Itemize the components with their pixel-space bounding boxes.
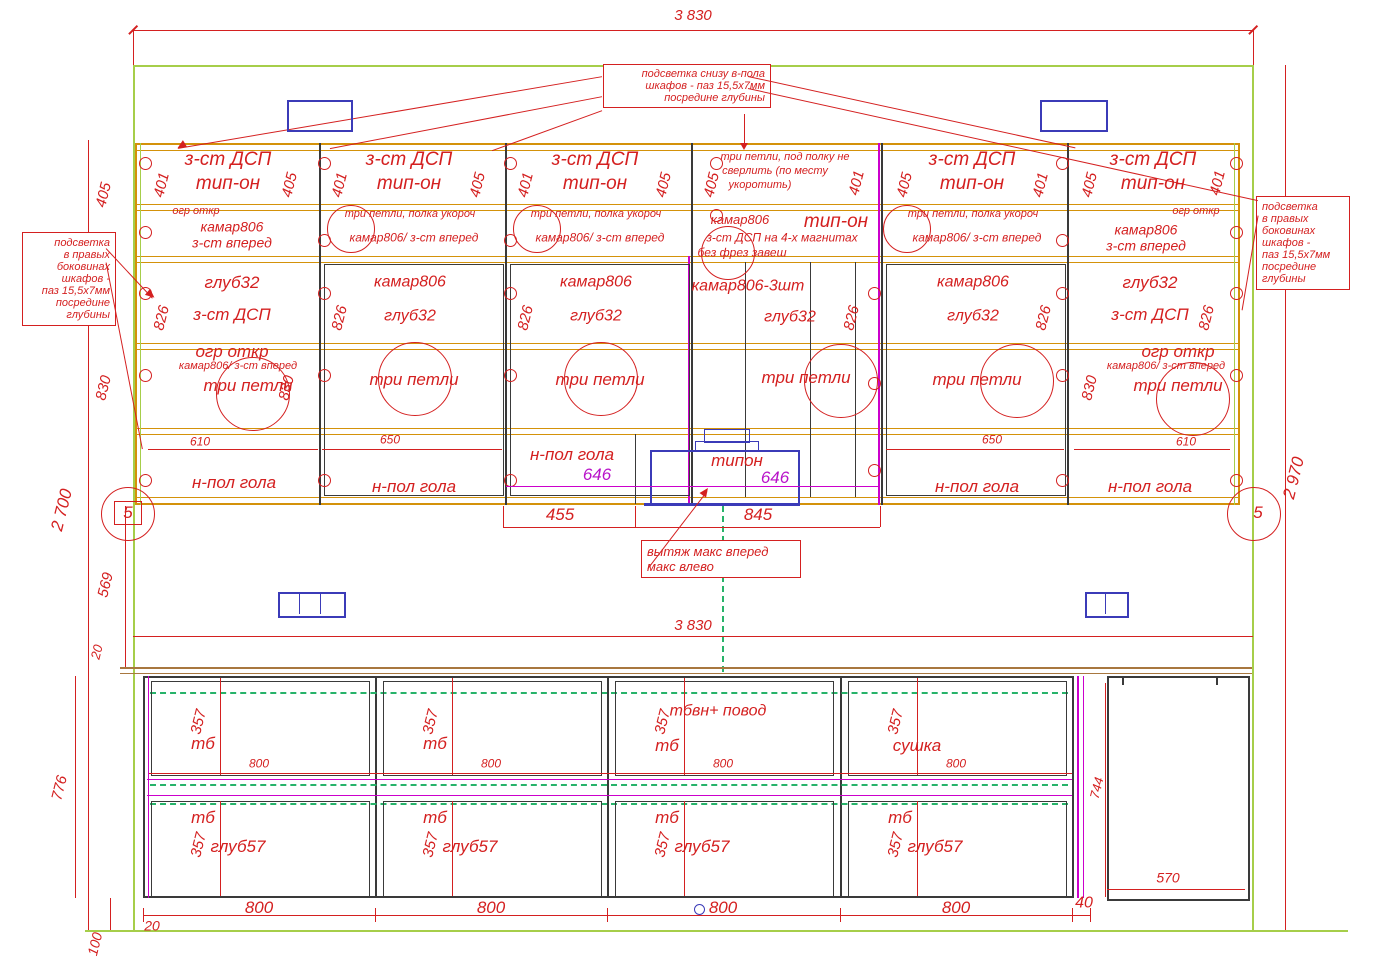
depth-label: глуб32	[947, 309, 999, 326]
depth-label: глуб32	[384, 309, 436, 326]
side-panel-accent	[1083, 676, 1084, 898]
dim-out-830: 830	[93, 374, 114, 402]
arrowhead	[740, 143, 748, 154]
door-label: з-ст ДСП	[185, 150, 272, 170]
dim-405: 405	[653, 171, 674, 199]
leader-line	[105, 262, 142, 449]
dim-line	[110, 898, 111, 930]
leader-line	[748, 76, 1076, 149]
dim-ext	[143, 908, 144, 922]
note: огр откр	[172, 206, 219, 218]
dim-plinth-20: 20	[144, 919, 160, 934]
door-label: з-ст ДСП	[552, 150, 639, 170]
note: три петли, полка укороч	[345, 209, 475, 221]
dim-ext	[635, 506, 636, 527]
dim-405: 405	[701, 171, 722, 199]
drawer-label: тб	[888, 809, 912, 827]
dim-top-width: 3 830	[674, 8, 712, 24]
dim-ext	[607, 908, 608, 922]
vent-box	[1040, 100, 1108, 132]
dim-ext	[375, 908, 376, 922]
dim-lower-776: 776	[49, 774, 70, 802]
hinge-label: три петли	[555, 371, 644, 389]
countertop-edge	[120, 673, 1252, 674]
dim-401: 401	[515, 171, 536, 199]
dim-405: 405	[467, 171, 488, 199]
cabinet-divider	[505, 143, 507, 505]
depth-label: глуб32	[1123, 274, 1178, 292]
note: з-ст вперед	[192, 236, 272, 251]
hinge-notch	[1122, 676, 1124, 685]
dim-405: 405	[1079, 171, 1100, 199]
drawer-label: тб	[655, 809, 679, 827]
note: камар806/ з-ст вперед	[350, 232, 479, 245]
leader-line	[178, 76, 602, 149]
depth-label: глуб57	[675, 838, 730, 856]
rail-accent	[147, 779, 1072, 780]
door-label: тип-он	[563, 174, 627, 194]
dim-line	[133, 30, 1253, 31]
door-label: тип-он	[196, 174, 260, 194]
door-label: тип-он	[804, 212, 868, 232]
arrowhead	[145, 289, 160, 303]
hinge-label: три петли	[761, 369, 850, 387]
dim-830: 830	[1079, 374, 1100, 402]
dim-line	[149, 773, 1072, 774]
kitchen-elevation-drawing: 3 830 2 700 2 970 569 20 776 100 20 405 …	[0, 0, 1381, 973]
leader-line	[330, 96, 602, 149]
base-divider	[1072, 676, 1074, 898]
cabinet-edge	[135, 143, 1240, 145]
note: без фрез завеш	[697, 247, 786, 260]
leader-line	[744, 114, 745, 146]
note-right-lighting: подсветкав правых боковинахшкафов - паз …	[1256, 196, 1350, 290]
drawer-label: тб	[655, 737, 679, 755]
rail-accent	[147, 795, 1072, 796]
dim-counter-20: 20	[89, 643, 106, 660]
dim-line	[133, 636, 1253, 637]
dim-out-405: 405	[93, 181, 114, 209]
rail-dash	[150, 784, 1068, 786]
dim-ext	[880, 506, 881, 527]
floor-line	[85, 930, 1348, 932]
hinge-label: три петли	[932, 371, 1021, 389]
dim-line	[220, 678, 221, 775]
note: камар806-3шт	[692, 279, 805, 296]
hood-axis	[722, 506, 724, 672]
drawer-note: тбвн+ повод	[670, 704, 767, 721]
level-646: 646	[761, 469, 789, 487]
socket-divider	[320, 592, 321, 614]
note: камар806/ з-ст вперед	[536, 232, 665, 245]
door-label: тип-он	[940, 174, 1004, 194]
door-label: з-ст ДСП	[366, 150, 453, 170]
note: камар806	[711, 213, 769, 227]
right-cabinet	[1107, 676, 1250, 901]
dim-line	[886, 449, 1064, 450]
dim-line	[1105, 683, 1106, 897]
hinge-label: три петли	[1133, 377, 1222, 395]
depth-label: глуб32	[570, 309, 622, 326]
dim-800: 800	[249, 758, 269, 771]
cabinet-divider	[881, 143, 883, 505]
dim-line	[684, 678, 685, 775]
dim-570: 570	[1156, 871, 1179, 886]
socket-divider	[1105, 592, 1106, 614]
dim-line	[322, 449, 502, 450]
marker-right: 5	[1253, 504, 1262, 522]
dim-line	[1074, 449, 1230, 450]
dim-left-height: 2 700	[48, 487, 76, 533]
cabinet-edge	[135, 143, 137, 505]
shelf-dim: 610	[1176, 436, 1196, 449]
dim-826: 826	[151, 304, 172, 332]
base-divider	[607, 676, 609, 898]
dim-ext	[133, 30, 134, 65]
shelf-label: н-пол гола	[530, 446, 614, 464]
drawer-label: тб	[423, 809, 447, 827]
dim-800: 800	[481, 758, 501, 771]
note: сверлить (по месту	[722, 166, 828, 178]
material-label: з-ст ДСП	[193, 306, 271, 324]
dim-ext	[503, 506, 504, 527]
level-646: 646	[583, 466, 611, 484]
depth-label: глуб57	[443, 838, 498, 856]
cabinet-edge	[135, 150, 1240, 151]
shelf-label: н-пол гола	[1108, 478, 1192, 496]
dim-line	[503, 527, 880, 528]
cabinet-divider	[1067, 143, 1069, 505]
drawer-label: тб	[423, 735, 447, 753]
note-top-lighting: подсветка снизу в-пола шкафов - паз 15,5…	[603, 64, 771, 108]
drawer-label: сушка	[893, 737, 941, 755]
level-line-646	[506, 486, 878, 487]
dim-800: 800	[713, 758, 733, 771]
dim-line	[148, 449, 318, 450]
note: три петли, полка укороч	[908, 209, 1038, 221]
hood-label: типон	[711, 452, 763, 470]
small-blue-circle	[694, 904, 705, 915]
note: огр откр	[1141, 343, 1214, 361]
shelf-dim: 650	[380, 434, 400, 447]
base-divider	[375, 676, 377, 898]
dim-line	[1107, 889, 1245, 890]
depth-label: глуб57	[908, 838, 963, 856]
cabinet-divider-accent	[878, 143, 880, 505]
door-label: з-ст ДСП	[1110, 150, 1197, 170]
dim-line	[75, 676, 76, 898]
dim-401: 401	[846, 169, 867, 197]
dim-lower-width: 3 830	[674, 618, 712, 634]
dim-ext	[1253, 30, 1254, 65]
depth-label: глуб57	[211, 838, 266, 856]
note: камар806	[560, 275, 632, 292]
dim-line	[452, 678, 453, 775]
shelf-label: н-пол гола	[372, 478, 456, 496]
note: укоротить)	[729, 180, 792, 192]
vent-box	[287, 100, 353, 132]
dim-gap-40: 40	[1075, 896, 1093, 913]
dim-gap-569: 569	[95, 571, 116, 599]
note: камар806/ з-ст вперед	[913, 232, 1042, 245]
cabinet-side-light	[1234, 143, 1235, 505]
note: камар806/ з-ст вперед	[179, 361, 297, 373]
dim-line	[917, 678, 918, 775]
cabinet-edge	[135, 204, 1240, 205]
dim-826: 826	[1196, 304, 1217, 332]
dim-455: 455	[546, 506, 574, 524]
socket-box	[1085, 592, 1129, 618]
hinge-notch	[1216, 676, 1218, 685]
dim-ext	[840, 908, 841, 922]
dim-826: 826	[841, 304, 862, 332]
dim-ext	[1072, 908, 1073, 922]
note-left-lighting: подсветкав правых боковинахшкафов - паз …	[22, 232, 116, 326]
dim-405: 405	[279, 171, 300, 199]
depth-label: глуб32	[205, 274, 260, 292]
dim-401: 401	[151, 171, 172, 199]
cabinet-side-light	[140, 143, 141, 505]
dim-845: 845	[744, 506, 772, 524]
note: камар806/ з-ст вперед	[1107, 361, 1225, 373]
note: камар806	[937, 275, 1009, 292]
note: камар806	[1115, 223, 1178, 238]
note: огр откр	[195, 343, 268, 361]
note: з-ст вперед	[1106, 239, 1186, 254]
countertop	[120, 667, 1252, 669]
socket-divider	[299, 592, 300, 614]
shelf-label: н-пол гола	[935, 478, 1019, 496]
note: камар806	[374, 275, 446, 292]
note: камар806	[201, 220, 264, 235]
depth-label: глуб32	[764, 310, 816, 327]
shelf-dim: 610	[190, 436, 210, 449]
cabinet-divider	[319, 143, 321, 505]
dim-401: 401	[1030, 171, 1051, 199]
socket-box	[278, 592, 346, 618]
dim-line	[143, 915, 1090, 916]
note: огр откр	[1172, 206, 1219, 218]
shelf-edge	[635, 434, 636, 504]
cabinet-edge	[135, 210, 1240, 211]
drawer-label: тб	[191, 735, 215, 753]
door-label: тип-он	[377, 174, 441, 194]
shelf-label: н-пол гола	[192, 474, 276, 492]
note: з-ст ДСП на 4-х магнитах	[706, 232, 857, 245]
drawer-label: тб	[191, 809, 215, 827]
dim-800: 800	[946, 758, 966, 771]
base-divider	[840, 676, 842, 898]
dim-830: 830	[276, 374, 297, 402]
dim-401: 401	[329, 171, 350, 199]
hinge-label: три петли	[369, 371, 458, 389]
marker-left: 5	[123, 504, 132, 522]
side-panel-accent	[1077, 676, 1079, 898]
note: три петли, полка укороч	[531, 209, 661, 221]
side-panel-accent	[148, 676, 149, 898]
shelf-dim: 650	[982, 434, 1002, 447]
dim-744: 744	[1088, 776, 1106, 800]
base-divider	[143, 676, 145, 898]
dim-405: 405	[894, 171, 915, 199]
door-label: з-ст ДСП	[929, 150, 1016, 170]
dim-plinth-100: 100	[85, 931, 105, 957]
material-label: з-ст ДСП	[1111, 306, 1189, 324]
